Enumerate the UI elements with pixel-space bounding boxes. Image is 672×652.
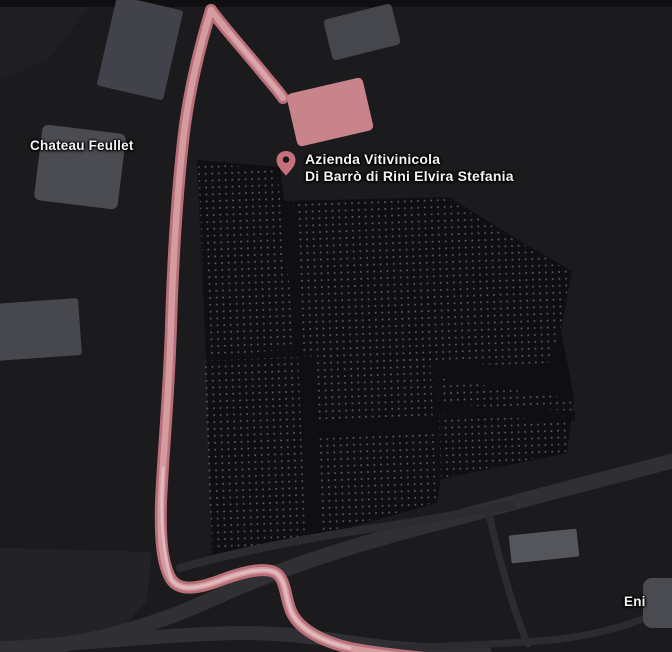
pin-body — [277, 151, 296, 176]
map-pin-icon[interactable] — [274, 149, 298, 177]
winery-label[interactable]: Azienda Vitivinicola Di Barrò di Rini El… — [305, 151, 514, 185]
chateau-label[interactable]: Chateau Feullet — [30, 138, 134, 153]
building-chateau — [34, 124, 127, 210]
map-canvas[interactable]: Azienda Vitivinicola Di Barrò di Rini El… — [0, 0, 672, 652]
map-graphics — [0, 0, 672, 652]
winery-label-line2: Di Barrò di Rini Elvira Stefania — [305, 168, 514, 185]
terrain-edge — [0, 0, 672, 7]
vineyard-field — [313, 356, 437, 533]
vineyard-field — [200, 357, 306, 553]
pin-hole — [283, 156, 289, 162]
building-fuel-station — [643, 578, 672, 628]
building — [0, 298, 82, 361]
winery-label-line1: Azienda Vitivinicola — [305, 151, 514, 168]
fuel-station-label[interactable]: Eni — [624, 594, 646, 609]
